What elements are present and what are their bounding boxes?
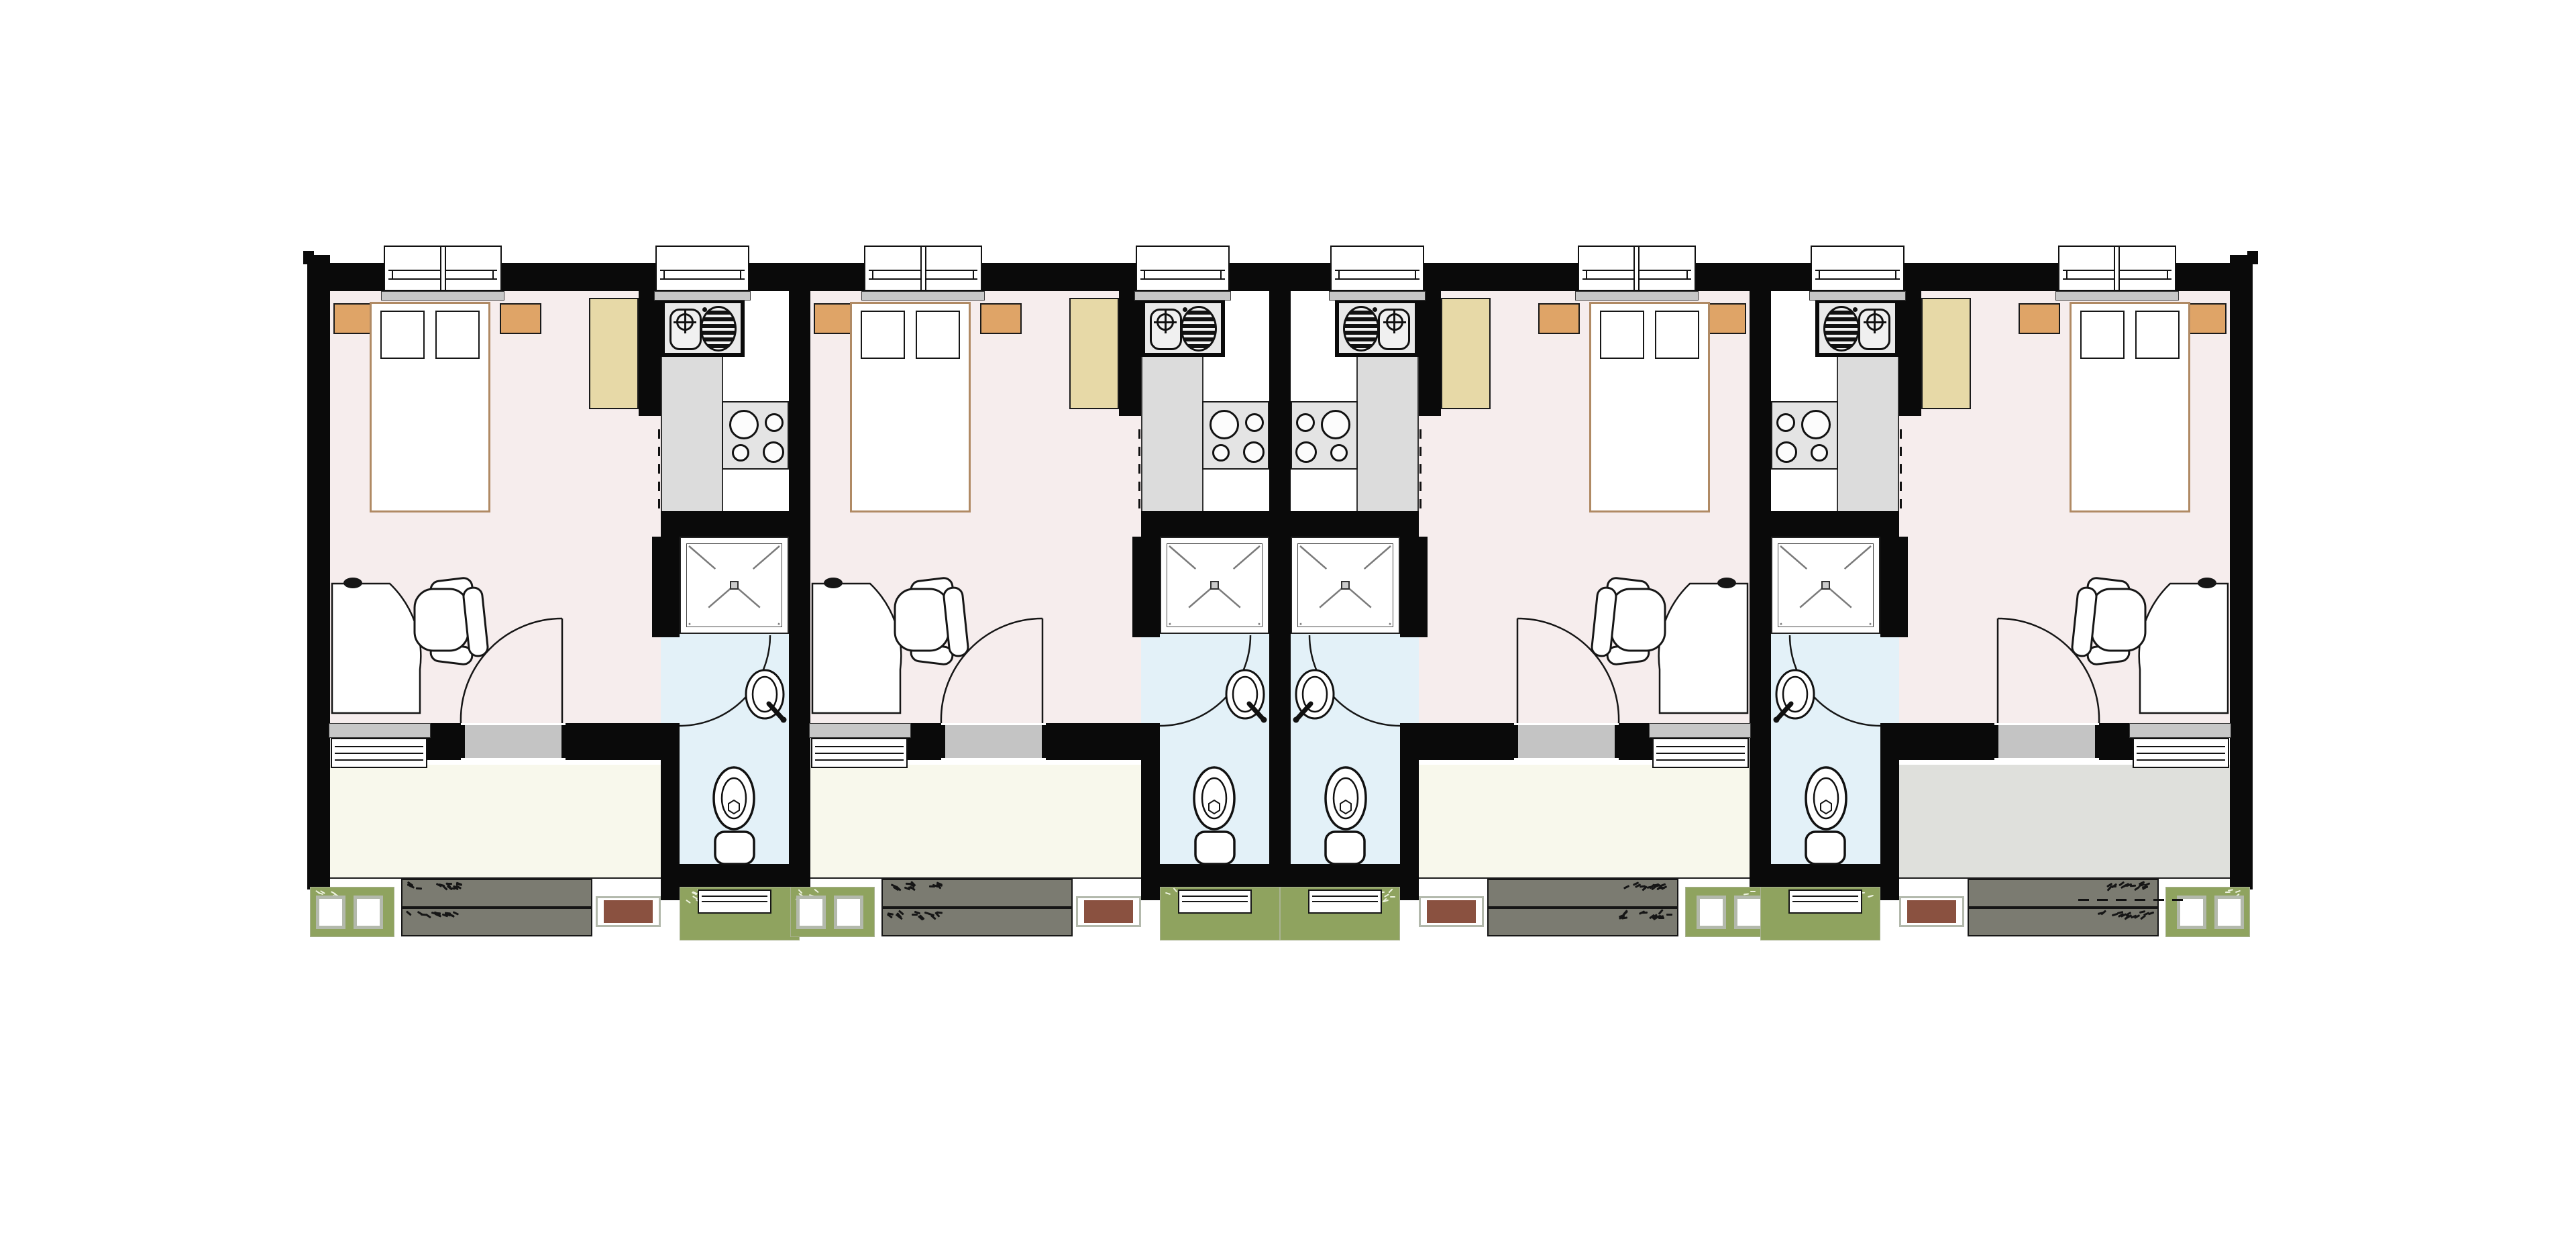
linework-overlay [784, 0, 1287, 979]
shower-drain [1342, 582, 1349, 589]
desk-lamp-dot [343, 578, 362, 588]
desk [2139, 584, 2228, 713]
toilet [1806, 767, 1846, 864]
studio-unit-2 [810, 0, 1269, 1243]
office-chair [415, 577, 488, 665]
floor-plan-canvas [0, 0, 2576, 1243]
linework-overlay [1754, 0, 2257, 979]
desk-lamp-dot [1717, 578, 1736, 588]
toilet [1326, 767, 1366, 864]
desk [1659, 584, 1748, 713]
desk-lamp-dot [2198, 578, 2216, 588]
shower-cross [1780, 546, 1871, 625]
shower-cross [1300, 546, 1391, 625]
shower-drain [731, 582, 738, 589]
studio-unit-1 [330, 0, 789, 1243]
linework-overlay [303, 0, 806, 979]
office-chair [2072, 577, 2145, 665]
shower-cross [689, 546, 780, 625]
washbasin [1774, 670, 1815, 723]
office-chair [1591, 577, 1665, 665]
desk [812, 584, 901, 713]
shower-drain [1822, 582, 1829, 589]
toilet [1194, 767, 1234, 864]
washbasin [746, 670, 787, 723]
desk [332, 584, 421, 713]
linework-overlay [1273, 0, 1776, 979]
toilet [714, 767, 754, 864]
washbasin [1226, 670, 1267, 723]
shower-cross [1169, 546, 1260, 625]
washbasin [1293, 670, 1334, 723]
studio-unit-3 [1291, 0, 1750, 1243]
desk-lamp-dot [824, 578, 843, 588]
shower-drain [1211, 582, 1218, 589]
office-chair [895, 577, 969, 665]
studio-unit-4 [1771, 0, 2230, 1243]
